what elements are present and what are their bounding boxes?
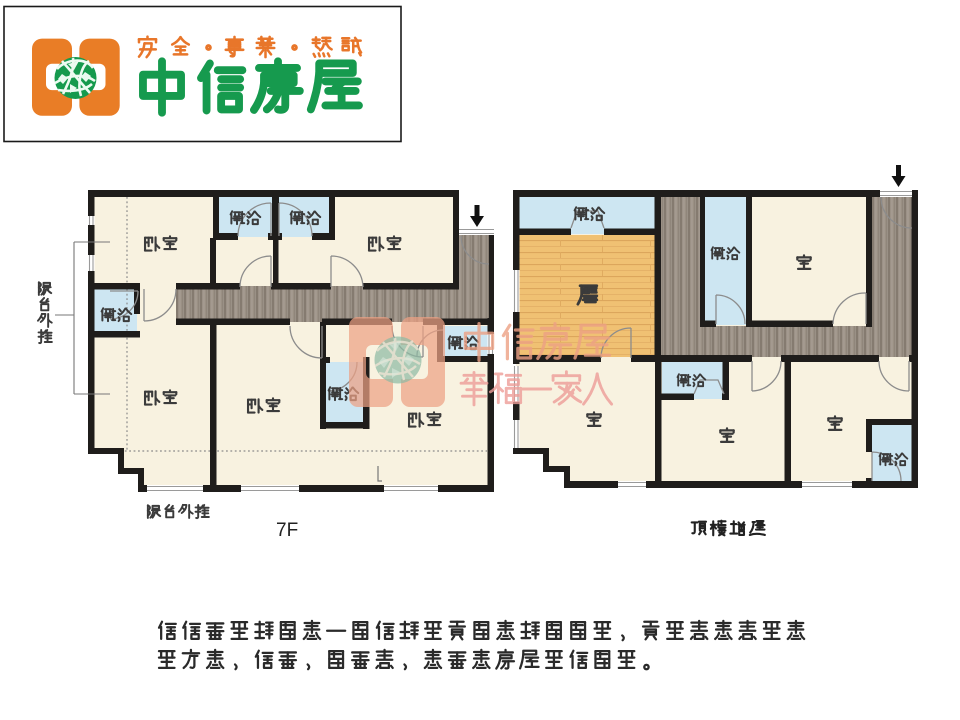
svg-text:7F: 7F: [276, 520, 298, 541]
